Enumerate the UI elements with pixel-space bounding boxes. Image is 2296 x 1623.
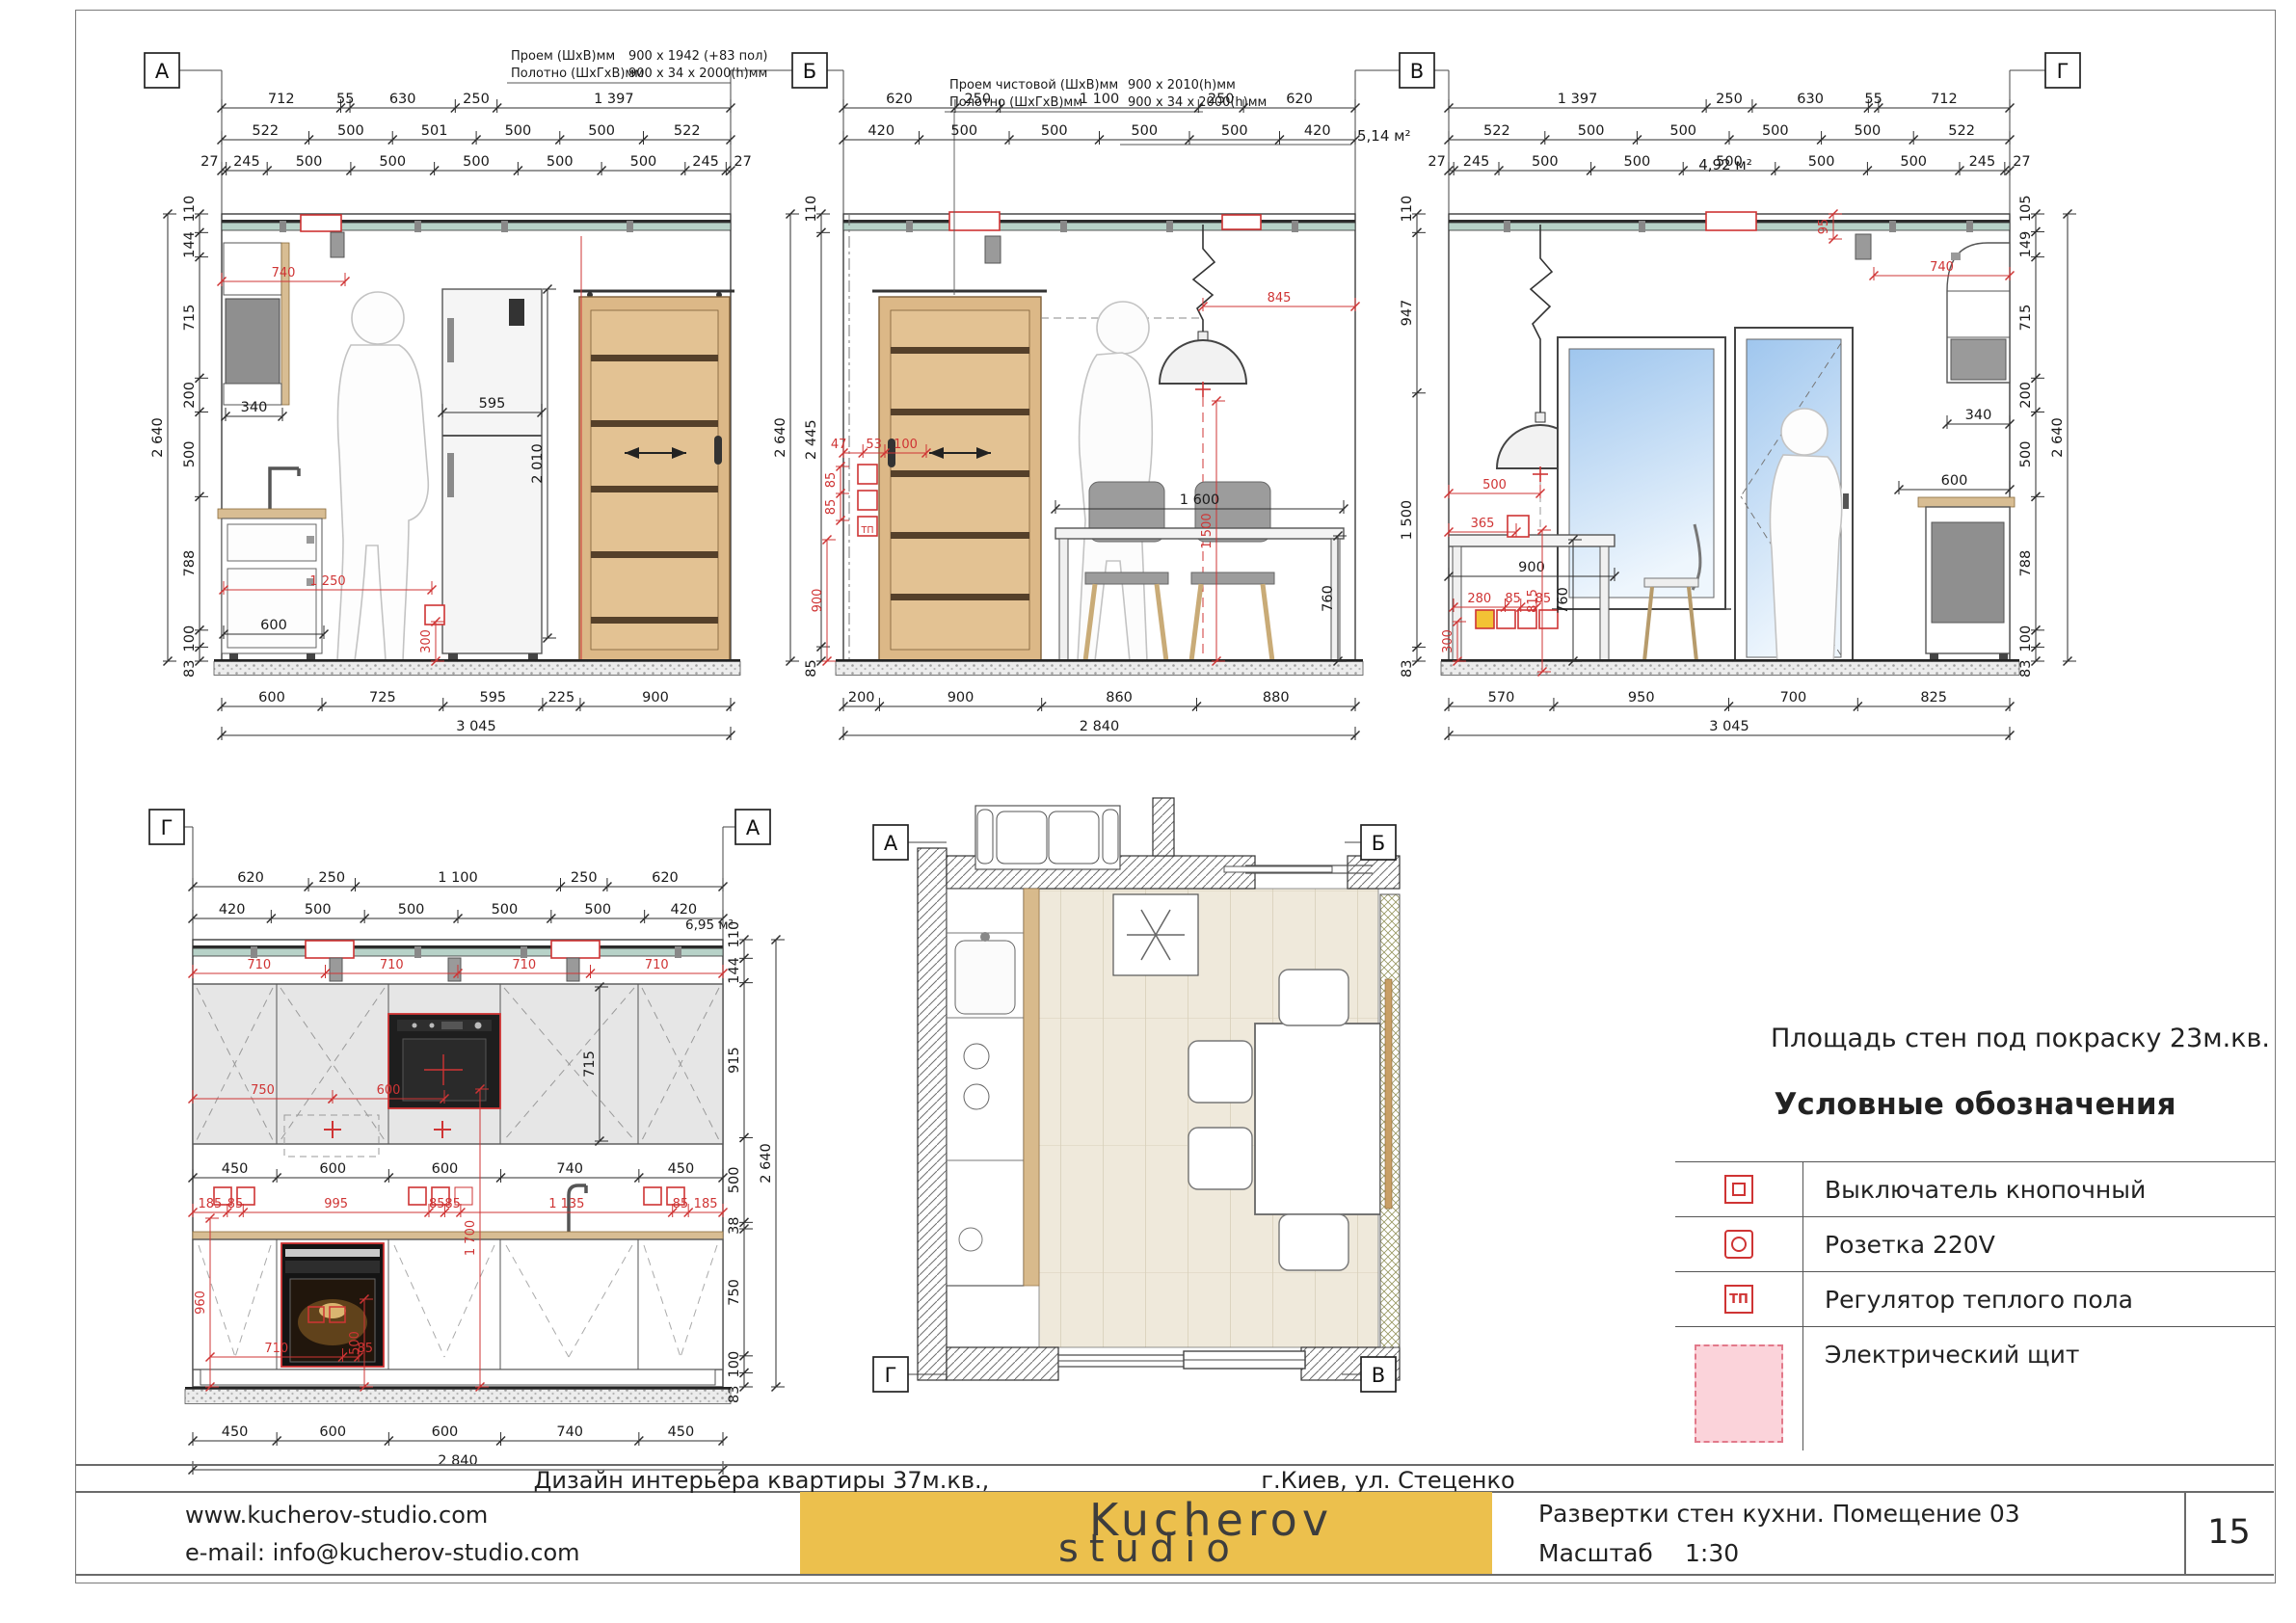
svg-text:900: 900 — [948, 690, 974, 705]
svg-text:1 500: 1 500 — [1200, 513, 1215, 548]
svg-text:В: В — [1410, 60, 1424, 83]
svg-text:600: 600 — [1941, 473, 1968, 489]
socket-icon — [1497, 610, 1515, 628]
svg-text:620: 620 — [237, 870, 264, 886]
svg-text:83: 83 — [1400, 659, 1415, 677]
switch-icon — [1724, 1175, 1753, 1204]
plan-wall-top-right — [1348, 856, 1400, 889]
dim-chain: 712556302501 397 — [218, 92, 735, 113]
svg-text:947: 947 — [1400, 300, 1415, 327]
socket-icon — [1724, 1230, 1753, 1259]
elevation-marker-Г: Г — [149, 810, 184, 844]
svg-text:710: 710 — [264, 1342, 288, 1356]
logo-text-studio: studio — [1058, 1527, 1241, 1571]
ceiling-junction-box — [306, 941, 354, 958]
annotation-label: 4,92 м² — [1698, 156, 1752, 173]
svg-text:522: 522 — [674, 123, 701, 139]
svg-text:825: 825 — [1920, 690, 1947, 705]
svg-text:500: 500 — [379, 154, 406, 170]
svg-text:595: 595 — [479, 396, 506, 412]
svg-text:620: 620 — [886, 92, 913, 107]
svg-text:100: 100 — [2018, 625, 2034, 652]
svg-text:110: 110 — [804, 196, 819, 223]
svg-text:815: 815 — [1526, 589, 1540, 613]
svg-text:85: 85 — [824, 472, 839, 489]
svg-text:1 600: 1 600 — [1180, 492, 1220, 508]
dim-chain: 2 640 — [2050, 210, 2076, 666]
svg-text:55: 55 — [336, 92, 354, 107]
elevation-marker-В: В — [1361, 1357, 1396, 1392]
project-address: г.Киев, ул. Стеценко — [1205, 1467, 1571, 1494]
svg-text:500: 500 — [1900, 154, 1927, 170]
svg-text:55: 55 — [1864, 92, 1882, 107]
studio-website: www.kucherov-studio.com — [185, 1502, 488, 1529]
svg-text:760: 760 — [1556, 587, 1571, 614]
svg-text:250: 250 — [571, 870, 598, 886]
elevation-marker-Г: Г — [873, 1357, 908, 1392]
elevation-marker-Б: Б — [1361, 825, 1396, 860]
svg-text:2 640: 2 640 — [773, 417, 788, 458]
svg-text:710: 710 — [247, 958, 271, 972]
legend-row-switch: Выключатель кнопочный — [1675, 1162, 2275, 1217]
svg-text:2 445: 2 445 — [804, 419, 819, 460]
svg-text:450: 450 — [222, 1161, 249, 1177]
svg-text:500: 500 — [547, 154, 574, 170]
svg-text:450: 450 — [668, 1161, 695, 1177]
svg-text:715: 715 — [182, 305, 198, 332]
socket-icon — [409, 1187, 426, 1205]
svg-text:570: 570 — [1488, 690, 1515, 705]
svg-text:500: 500 — [505, 123, 532, 139]
svg-text:2 640: 2 640 — [759, 1143, 774, 1184]
ceiling-stub — [331, 232, 344, 257]
svg-text:А: А — [155, 60, 170, 83]
svg-text:420: 420 — [219, 902, 246, 918]
svg-text:200: 200 — [182, 382, 198, 409]
svg-text:200: 200 — [2018, 382, 2034, 409]
svg-text:740: 740 — [556, 1161, 583, 1177]
switch-icon — [1508, 516, 1529, 537]
elevation-a-drawing — [214, 83, 740, 676]
svg-text:2 640: 2 640 — [2050, 417, 2066, 458]
svg-text:53: 53 — [866, 438, 882, 452]
legend-table: Выключатель кнопочный Розетка 220V ТП Ре… — [1675, 1161, 2275, 1450]
svg-text:950: 950 — [1628, 690, 1655, 705]
svg-text:501: 501 — [421, 123, 448, 139]
svg-text:880: 880 — [1263, 690, 1290, 705]
svg-text:225: 225 — [548, 690, 575, 705]
svg-text:960: 960 — [194, 1290, 208, 1315]
annotation-label: 6,95 м² — [685, 918, 734, 933]
ceiling-stub — [985, 236, 1001, 263]
svg-text:788: 788 — [182, 550, 198, 577]
sliding-door-b — [872, 291, 1047, 661]
scale-label: Масштаб — [1538, 1539, 1653, 1567]
elevation-marker-А: А — [735, 810, 770, 844]
svg-text:245: 245 — [233, 154, 260, 170]
tv-panel — [226, 299, 280, 384]
plan-table — [1255, 1024, 1380, 1214]
annotation-label: 900 x 2010(h)мм — [1128, 78, 1236, 93]
svg-text:500: 500 — [1624, 154, 1651, 170]
svg-text:995: 995 — [324, 1197, 348, 1211]
plan-ceiling-light — [1113, 894, 1198, 975]
svg-text:В: В — [1372, 1364, 1385, 1387]
svg-text:95: 95 — [1817, 219, 1831, 235]
socket-icon — [1476, 610, 1494, 628]
svg-text:500: 500 — [584, 902, 611, 918]
shelf-unit-v — [1947, 243, 2010, 383]
titleblock-line — [75, 1464, 2274, 1466]
svg-text:185: 185 — [694, 1197, 718, 1211]
svg-text:27: 27 — [1428, 154, 1445, 170]
dim-chain: 6202501 100250620 — [189, 870, 728, 891]
base-unit-v — [1918, 497, 2015, 661]
sheet-title: Развертки стен кухни. Помещение 03 — [1538, 1500, 2020, 1528]
svg-text:Б: Б — [803, 60, 816, 83]
svg-text:47: 47 — [831, 438, 847, 452]
svg-text:750: 750 — [727, 1279, 742, 1306]
dim-chain: 570950700825 — [1445, 690, 2015, 711]
legend-label: Выключатель кнопочный — [1803, 1176, 2146, 1204]
svg-text:300: 300 — [419, 629, 434, 653]
plan-sofa — [975, 806, 1120, 869]
svg-text:1 100: 1 100 — [1080, 92, 1120, 107]
svg-text:105: 105 — [2018, 195, 2034, 222]
svg-text:83: 83 — [727, 1385, 742, 1402]
svg-text:27: 27 — [200, 154, 218, 170]
svg-text:185: 185 — [198, 1197, 222, 1211]
svg-text:740: 740 — [272, 266, 296, 280]
svg-text:85: 85 — [444, 1197, 461, 1211]
svg-text:600: 600 — [260, 618, 287, 633]
svg-text:860: 860 — [1106, 690, 1133, 705]
svg-text:500: 500 — [1578, 123, 1605, 139]
svg-text:900: 900 — [811, 589, 825, 613]
ceiling-stub — [1855, 234, 1871, 259]
svg-text:100: 100 — [727, 1351, 742, 1378]
floor-build-v — [1441, 662, 2019, 676]
svg-text:85: 85 — [804, 659, 819, 677]
studio-email: e-mail: info@kucherov-studio.com — [185, 1539, 580, 1566]
annotation-label: ТП — [861, 525, 874, 536]
dim-chain: 600725595225900 — [218, 690, 735, 711]
annotation-label: Проем (ШхВ)мм — [511, 49, 615, 64]
dim-chain: 522500501500500522 — [218, 123, 735, 145]
svg-text:85: 85 — [673, 1197, 689, 1211]
svg-text:110: 110 — [1400, 196, 1415, 223]
svg-text:760: 760 — [1321, 585, 1336, 612]
svg-text:500: 500 — [950, 123, 977, 139]
svg-text:715: 715 — [2018, 305, 2034, 332]
svg-text:740: 740 — [556, 1424, 583, 1440]
dim-chain: 900 — [811, 536, 836, 666]
svg-text:500: 500 — [305, 902, 332, 918]
svg-text:245: 245 — [1463, 154, 1490, 170]
svg-text:712: 712 — [268, 92, 295, 107]
svg-text:420: 420 — [868, 123, 894, 139]
svg-text:500: 500 — [398, 902, 425, 918]
studio-logo: Kucherov studio — [800, 1492, 1492, 1574]
legend-row-socket: Розетка 220V — [1675, 1217, 2275, 1272]
svg-text:110: 110 — [182, 196, 198, 223]
svg-text:710: 710 — [645, 958, 669, 972]
svg-text:83: 83 — [2018, 659, 2034, 677]
svg-text:630: 630 — [1797, 92, 1824, 107]
svg-text:38: 38 — [727, 1216, 742, 1234]
legend-title: Условные обозначения — [1675, 1087, 2275, 1122]
svg-text:522: 522 — [1483, 123, 1510, 139]
svg-text:Г: Г — [161, 816, 174, 839]
annotation-label: 900 x 34 x 2000(h)мм — [1128, 95, 1267, 110]
plan-wall-left — [918, 848, 947, 1380]
svg-text:100: 100 — [894, 438, 918, 452]
annotation-label: Полотно (ШхГхВ)мм — [949, 95, 1082, 110]
svg-text:300: 300 — [1441, 629, 1455, 653]
svg-text:600: 600 — [432, 1161, 459, 1177]
floor-heating-icon: ТП — [1724, 1285, 1753, 1314]
svg-text:Г: Г — [885, 1364, 897, 1387]
ceiling-junction-box — [949, 212, 1000, 230]
svg-text:1 500: 1 500 — [1400, 500, 1415, 541]
ceiling-junction-box — [1222, 215, 1261, 229]
upper-cabinets-g — [193, 984, 723, 1144]
floor-build-g — [185, 1390, 731, 1404]
svg-text:710: 710 — [512, 958, 536, 972]
plan-wall-bottom-left — [947, 1347, 1058, 1380]
svg-text:500: 500 — [296, 154, 323, 170]
fridge-a — [442, 289, 542, 661]
plan-counter-edge — [1024, 889, 1039, 1286]
svg-text:500: 500 — [1131, 123, 1158, 139]
svg-text:500: 500 — [588, 123, 615, 139]
svg-text:500: 500 — [1482, 478, 1507, 492]
svg-text:740: 740 — [1930, 260, 1954, 275]
annotation-label: Полотно (ШхГхВ)мм — [511, 67, 644, 81]
plan-kitchen-counter — [947, 889, 1039, 1286]
plan-chair — [1279, 970, 1348, 1025]
svg-text:915: 915 — [727, 1047, 742, 1074]
svg-text:3 045: 3 045 — [1709, 719, 1749, 734]
svg-text:715: 715 — [582, 1051, 598, 1078]
svg-text:1 397: 1 397 — [1558, 92, 1598, 107]
svg-text:85: 85 — [227, 1197, 244, 1211]
dim-chain: 1 39725063055712 — [1445, 92, 2015, 113]
dim-chain: 2 640 — [150, 210, 176, 666]
svg-text:620: 620 — [652, 870, 679, 886]
dim-chain: 11014471520050078810083 — [182, 196, 208, 678]
dim-chain: 522500500500500522 — [1445, 123, 2015, 145]
plan-sink — [955, 941, 1015, 1014]
dim-chain: 450600600740450 — [189, 1424, 728, 1446]
svg-text:600: 600 — [319, 1424, 346, 1440]
plan-chair — [1279, 1214, 1348, 1270]
svg-text:500: 500 — [337, 123, 364, 139]
svg-text:600: 600 — [432, 1424, 459, 1440]
dim-chain: 2 840 — [840, 719, 1360, 740]
svg-text:83: 83 — [182, 659, 198, 677]
svg-text:500: 500 — [492, 902, 519, 918]
dim-chain: 420500500500500420 — [189, 902, 728, 923]
base-cabinets-g — [193, 1239, 723, 1385]
svg-text:750: 750 — [251, 1083, 275, 1098]
svg-text:1 100: 1 100 — [438, 870, 478, 886]
svg-text:1 700: 1 700 — [464, 1220, 478, 1256]
svg-text:144: 144 — [727, 957, 742, 984]
svg-text:500: 500 — [1855, 123, 1882, 139]
svg-text:А: А — [746, 816, 761, 839]
svg-text:900: 900 — [642, 690, 669, 705]
svg-text:600: 600 — [258, 690, 285, 705]
ceiling-junction-box — [1706, 212, 1756, 230]
paint-area-note: Площадь стен под покраску 23м.кв. — [1446, 1024, 2270, 1053]
svg-text:144: 144 — [182, 231, 198, 258]
annotation-label: 5,14 м² — [1357, 127, 1411, 145]
plan-wall-stub — [1153, 798, 1174, 856]
svg-text:630: 630 — [389, 92, 416, 107]
svg-text:250: 250 — [1716, 92, 1743, 107]
dim-chain: 1109471 50083 — [1400, 196, 1426, 678]
legend-row-electrical-panel: Электрический щит — [1675, 1327, 2275, 1450]
dim-chain: 6202501 100250620 — [840, 92, 1360, 113]
ceiling-junction-box — [301, 215, 341, 231]
svg-text:1 397: 1 397 — [594, 92, 634, 107]
dim-chain: 3 045 — [1445, 719, 2015, 740]
svg-text:Г: Г — [2057, 60, 2069, 83]
svg-text:500: 500 — [630, 154, 657, 170]
svg-text:420: 420 — [670, 902, 697, 918]
svg-text:450: 450 — [222, 1424, 249, 1440]
floor-plan — [918, 798, 1400, 1380]
svg-text:500: 500 — [1808, 154, 1835, 170]
svg-text:500: 500 — [1221, 123, 1248, 139]
svg-text:500: 500 — [182, 441, 198, 468]
project-title: Дизайн интерьера квартиры 37м.кв., — [424, 1467, 1099, 1494]
elevation-marker-Б: Б — [792, 53, 827, 88]
svg-text:280: 280 — [1467, 592, 1491, 606]
svg-text:245: 245 — [1969, 154, 1996, 170]
svg-text:200: 200 — [848, 690, 875, 705]
svg-text:500: 500 — [727, 1167, 742, 1194]
svg-text:595: 595 — [479, 690, 506, 705]
annotation-label: 900 x 34 x 2000(h)мм — [628, 67, 767, 81]
dim-chain: 2724550050050050050024527 — [200, 154, 752, 175]
dim-chain: 1101449155003875010083 — [727, 921, 753, 1403]
svg-text:710: 710 — [380, 958, 404, 972]
svg-text:700: 700 — [1780, 690, 1807, 705]
socket-icon — [858, 465, 877, 484]
countertop-g — [193, 1232, 723, 1239]
page-number: 15 — [2184, 1491, 2274, 1574]
svg-text:245: 245 — [692, 154, 719, 170]
svg-text:600: 600 — [377, 1083, 401, 1098]
svg-text:620: 620 — [1286, 92, 1313, 107]
svg-text:600: 600 — [319, 1161, 346, 1177]
plan-chair — [1188, 1041, 1252, 1103]
window-v — [1552, 337, 1731, 609]
svg-text:85: 85 — [824, 499, 839, 516]
plan-window-door-bottom — [1058, 1351, 1305, 1369]
svg-text:2 840: 2 840 — [1080, 719, 1120, 734]
svg-text:725: 725 — [369, 690, 396, 705]
svg-text:788: 788 — [2018, 550, 2034, 577]
socket-icon — [858, 491, 877, 510]
svg-text:522: 522 — [1948, 123, 1975, 139]
svg-text:Б: Б — [1372, 832, 1385, 855]
svg-text:500: 500 — [1532, 154, 1559, 170]
svg-text:365: 365 — [1471, 517, 1495, 531]
svg-text:450: 450 — [668, 1424, 695, 1440]
svg-text:27: 27 — [734, 154, 751, 170]
svg-text:522: 522 — [252, 123, 279, 139]
svg-text:712: 712 — [1931, 92, 1958, 107]
svg-text:500: 500 — [1041, 123, 1068, 139]
dim-chain: 3 045 — [218, 719, 735, 740]
dim-chain: 10514971520050078810083 — [2018, 195, 2044, 678]
svg-text:1 250: 1 250 — [309, 574, 345, 589]
svg-text:500: 500 — [2018, 441, 2034, 468]
svg-text:2 010: 2 010 — [530, 443, 546, 484]
svg-text:2 640: 2 640 — [150, 417, 166, 458]
legend-row-floor-heating: ТП Регулятор теплого пола — [1675, 1272, 2275, 1327]
floor-build-b — [836, 662, 1363, 676]
dim-chain: 2 640 — [773, 210, 799, 666]
dim-chain: 2 640 — [759, 936, 785, 1392]
svg-text:27: 27 — [2013, 154, 2030, 170]
elevation-marker-В: В — [1400, 53, 1434, 88]
plan-chair — [1188, 1128, 1252, 1189]
dim-chain: 200900860880 — [840, 690, 1360, 711]
svg-text:1 135: 1 135 — [548, 1197, 584, 1211]
electrical-panel-icon — [1695, 1344, 1783, 1443]
svg-text:500: 500 — [463, 154, 490, 170]
socket-icon — [644, 1187, 661, 1205]
elevation-marker-А: А — [145, 53, 179, 88]
svg-text:250: 250 — [463, 92, 490, 107]
svg-text:900: 900 — [1518, 560, 1545, 575]
svg-text:500: 500 — [1669, 123, 1696, 139]
elevation-marker-Г: Г — [2045, 53, 2080, 88]
svg-text:250: 250 — [318, 870, 345, 886]
elevation-b-drawing — [836, 112, 1363, 676]
legend-label: Электрический щит — [1803, 1327, 2079, 1369]
annotation-label: 900 x 1942 (+83 пол) — [628, 49, 767, 64]
elevation-marker-А: А — [873, 825, 908, 860]
svg-text:А: А — [884, 832, 898, 855]
sliding-door-a — [574, 236, 734, 661]
floor-build-a — [214, 662, 740, 676]
plan-glazed-right-wall — [1380, 894, 1400, 1347]
legend-label: Регулятор теплого пола — [1803, 1286, 2133, 1314]
svg-text:3 045: 3 045 — [456, 719, 496, 734]
dim-chain: 420500500500500420 — [840, 123, 1360, 145]
door-handle-a — [714, 436, 722, 465]
ceiling-junction-box — [551, 941, 600, 958]
svg-text:340: 340 — [241, 400, 268, 415]
scale-value: 1:30 — [1685, 1539, 1739, 1567]
titleblock-line — [75, 1574, 2274, 1576]
annotation-label: Проем чистовой (ШхВ)мм — [949, 78, 1118, 93]
svg-text:100: 100 — [182, 625, 198, 652]
svg-text:420: 420 — [1304, 123, 1331, 139]
svg-text:85: 85 — [1505, 592, 1521, 606]
svg-text:149: 149 — [2018, 231, 2034, 258]
legend-label: Розетка 220V — [1803, 1231, 1995, 1259]
svg-text:500: 500 — [348, 1331, 362, 1355]
svg-text:500: 500 — [1762, 123, 1789, 139]
svg-text:845: 845 — [1268, 291, 1292, 306]
svg-text:340: 340 — [1965, 408, 1992, 423]
